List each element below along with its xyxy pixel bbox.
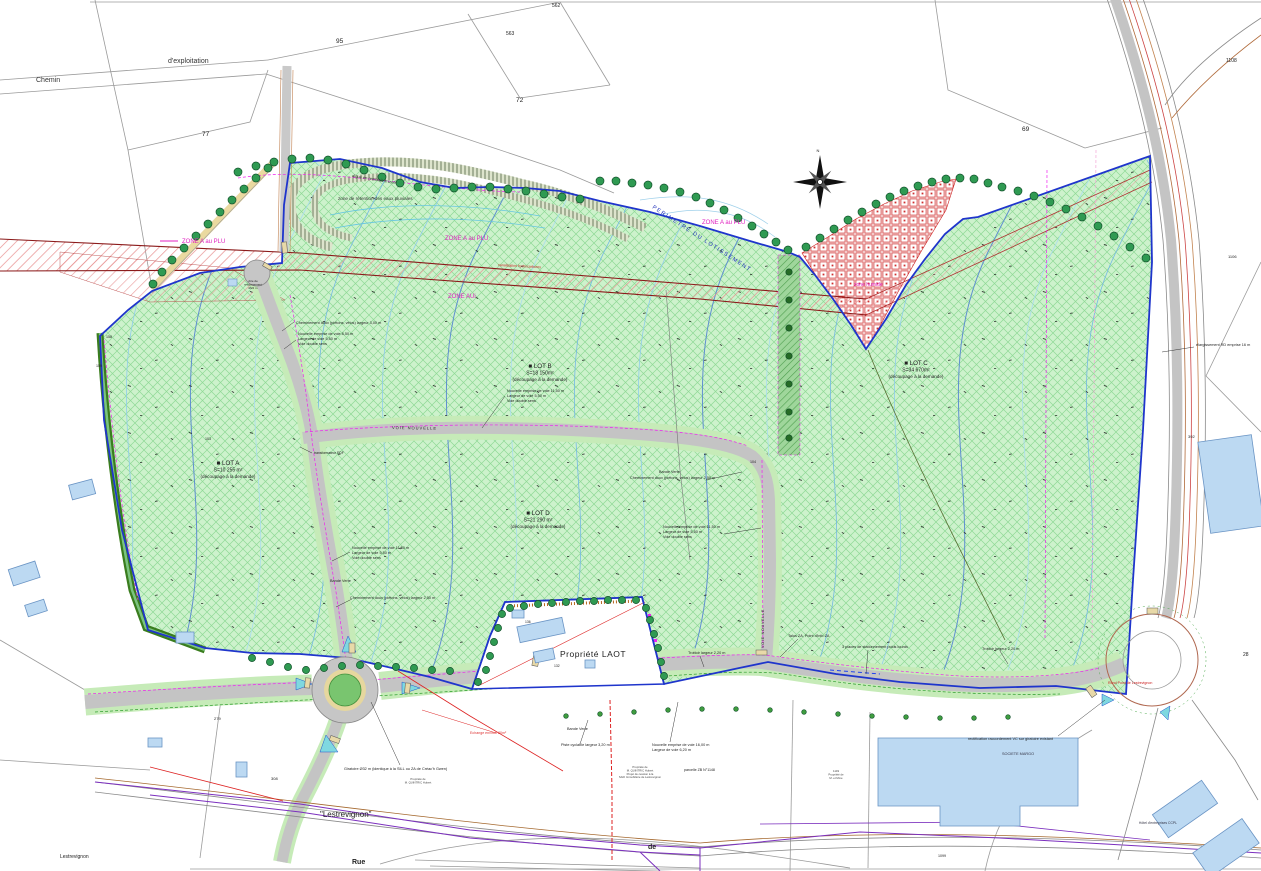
tree-icon [252,174,260,182]
tree-icon [786,381,792,387]
tree-icon [474,678,481,685]
ann-trottoir-1: Trottoir largeur 2,20 m [688,651,725,655]
tree-icon [844,216,852,224]
road-label-chemin: Chemin [36,77,60,84]
building-societe-margo [878,738,1078,826]
tree-icon [700,707,705,712]
site-plan-document: Chemind'exploitationVOIE NOUVELLEVOIE NO… [0,0,1261,871]
tree-icon [548,599,555,606]
tree-icon [642,604,649,611]
tree-icon [886,193,894,201]
tree-icon [786,269,792,275]
tree-icon [1062,205,1070,213]
ann-piste-cyclable: Piste cyclable largeur 3,20 m [561,743,610,747]
parcel-136: 136 [525,620,531,624]
tree-icon [734,707,739,712]
tree-icon [1110,232,1118,240]
site-plan-canvas: Chemind'exploitationVOIE NOUVELLEVOIE NO… [0,0,1261,871]
tree-icon [1126,243,1134,251]
tree-icon [288,155,296,163]
tree-icon [284,663,291,670]
tree-icon [786,297,792,303]
tree-icon [240,185,248,193]
zone-a-plu-center: ZONE A au PLU [445,236,488,242]
parcel-1108: 1108 [1226,58,1237,64]
road-label-voie-nouvelle-horizontal: VOIE NOUVELLE [392,425,437,431]
parcel-392: 392 [1188,434,1195,439]
tree-icon [692,193,700,201]
tree-icon [540,190,548,198]
tree-icon [324,156,332,164]
tree-icon [482,666,489,673]
ann-giratoire: Giratoire Ø32 m (identique à la SILL ou … [344,767,448,771]
tree-icon [216,208,224,216]
tree-icon [266,658,273,665]
tree-icon [618,596,625,603]
tree-icon [432,185,440,193]
tree-icon [228,196,236,204]
tree-icon [1094,222,1102,230]
parcel-28: 28 [1243,652,1249,658]
tree-icon [410,664,417,671]
tree-icon [576,195,584,203]
tree-icon [468,183,476,191]
property-block-west: Propriété deM. QUINTRIC Hubert [405,777,432,784]
tree-icon [590,597,597,604]
tree-icon [270,158,278,166]
tree-icon [576,597,583,604]
parcel-103: 103 [205,437,211,441]
tree-icon [646,616,653,623]
tree-icon [356,661,363,668]
parcel-95: 95 [336,38,344,45]
tree-icon [706,199,714,207]
tree-icon [772,238,780,246]
tree-icon [504,185,512,193]
tree-icon [650,630,657,637]
zone-aui: ZONE AUi [448,294,476,300]
tree-icon [666,708,671,713]
tree-icon [374,662,381,669]
tree-icon [338,662,345,669]
tree-icon [498,610,505,617]
parcel-563: 563 [506,31,515,37]
tree-icon [168,256,176,264]
parcel-1099: 1099 [938,854,946,858]
ann-trottoir-2: Trottoir largeur 2,20 m [982,647,1019,651]
parcel-69: 69 [1022,126,1030,133]
tree-icon [786,325,792,331]
tree-icon [904,715,909,720]
tree-icon [984,179,992,187]
tree-icon [490,638,497,645]
hotel-entreprises-label: Hôtel d'entreprises CCPL [1139,821,1177,825]
tree-icon [234,168,242,176]
tree-icon [494,624,501,631]
tree-icon [302,666,309,673]
tree-icon [446,667,453,674]
road-label-voie-nouvelle-vertical: VOIE NOUVELLE [761,609,765,648]
tree-icon [657,658,664,665]
compass-rose-icon [793,155,847,209]
tree-icon [612,177,620,185]
zone-a-plu-right: ZONE A au PLU [702,220,745,226]
lestrevignon-quoted: "Lestrevignon" [320,810,372,819]
tree-icon [596,177,604,185]
property-block-center: Propriété deM. QUINTRIC HubertProjet de … [619,765,662,779]
road-label-rue: Rue [352,859,365,866]
parcel-562: 562 [552,3,561,9]
tree-icon [872,200,880,208]
road-label-de: de [648,844,656,851]
parcel-77: 77 [202,131,210,138]
parcel-72: 72 [516,97,524,104]
parcel-132: 132 [554,664,560,668]
tree-icon [522,187,530,195]
tree-icon [564,714,569,719]
lestrevignon-corner: Lestrevignon [60,854,89,860]
tree-icon [760,230,768,238]
tree-icon [396,179,404,187]
tree-icon [720,206,728,214]
tree-icon [1078,213,1086,221]
ann-nouvelle-voie-5: Nouvelle emprise de voie 16,00 mLargeur … [652,743,709,752]
tree-icon [632,596,639,603]
tree-icon [830,225,838,233]
tree-icon [558,193,566,201]
tree-icon [628,179,636,187]
ann-cheminement-doux-1: Cheminement doux (piétons, vélos) largeu… [296,321,381,325]
tree-icon [858,208,866,216]
tree-icon [676,188,684,196]
property-block-east: 1149Propriété deM. et Mme [828,769,844,780]
ann-elargissement-rd: élargissement RD emprise 16 m [1196,343,1250,347]
tree-icon [836,712,841,717]
parcel-1106: 1106 [1228,254,1237,259]
building-east [1198,435,1261,534]
tree-icon [972,716,977,721]
parcel-279: 279 [214,716,221,721]
tree-icon [914,182,922,190]
tree-icon [928,178,936,186]
tree-icon [998,183,1006,191]
laot-property-label: Propriété LAOT [560,649,626,659]
tree-icon [428,666,435,673]
tree-icon [320,664,327,671]
tree-icon [1046,198,1054,206]
tree-icon [598,712,603,717]
tree-icon [248,654,255,661]
tree-icon [870,714,875,719]
ann-bande-verte-2: Bande Verte [330,579,351,583]
tree-icon [158,268,166,276]
ann-echange: Echange environ 80m² [470,731,507,735]
tree-icon [604,596,611,603]
tree-icon [520,602,527,609]
building-ccpl-1 [1152,780,1217,837]
parcel-308: 308 [271,776,278,781]
tree-icon [204,220,212,228]
tree-icon [1006,715,1011,720]
tree-icon [654,644,661,651]
parcel-159: 159 [96,364,102,368]
tree-icon [1030,192,1038,200]
tree-icon [149,280,157,288]
ann-stationnement: 3 places de stationnement poids lourds [842,645,908,649]
tree-icon [632,710,637,715]
tree-icon [816,234,824,242]
tree-icon [360,166,368,174]
tree-icon [252,162,260,170]
ann-bande-verte-3: Bande Verte [567,727,588,731]
tree-icon [942,175,950,183]
tree-icon [786,435,792,441]
tree-icon [306,154,314,162]
tree-icon [660,184,668,192]
tree-icon [342,160,350,168]
ann-rectification: rectification raccordement VC sur girato… [968,737,1054,741]
ann-parcelle-zb: parcelle ZB N°1148 [684,768,715,772]
ann-transformateur: transformateur EDF [314,451,344,455]
zone-humide: zone humide [854,282,883,288]
compass-north-label: N [817,148,820,153]
tree-icon [900,187,908,195]
tree-icon [506,604,513,611]
tree-icon [1142,254,1150,262]
tree-icon [768,708,773,713]
parcel-158: 158 [106,335,112,339]
zone-a-plu-left: ZONE A au PLU [182,239,225,245]
tree-icon [802,243,810,251]
tree-icon [660,672,667,679]
tree-icon [180,244,188,252]
zone-retention: zone de rétention des eaux pluviales [338,196,413,201]
ann-talus-za: Talus ZA, Point d'info ZA [788,634,830,638]
road-label-rond-point: Rond Point de Lestrevignon [1108,681,1152,685]
tree-icon [264,164,272,172]
tree-icon [486,183,494,191]
societe-margo-label: SOCIETE MARGO [1002,752,1034,756]
tree-icon [938,716,943,721]
tree-icon [534,600,541,607]
tree-icon [970,175,978,183]
tree-icon [784,246,792,254]
tree-icon [1014,187,1022,195]
tree-icon [748,222,756,230]
tree-icon [956,174,964,182]
tree-icon [786,353,792,359]
parcel-104: 104 [750,460,756,464]
ann-bande-verte-1: Bande Verte [659,470,680,474]
tree-icon [786,409,792,415]
tree-icon [644,181,652,189]
tree-icon [486,652,493,659]
ann-cheminement-doux-3: Cheminement doux (piétons, vélos) largeu… [350,596,435,600]
road-label-dexploitation: d'exploitation [168,58,209,65]
tree-icon [802,710,807,715]
ann-cheminement-doux-2: Cheminement doux (piétons, vélos) largeu… [630,476,715,480]
tree-icon [450,184,458,192]
tree-icon [562,598,569,605]
tree-icon [392,663,399,670]
tree-icon [414,183,422,191]
